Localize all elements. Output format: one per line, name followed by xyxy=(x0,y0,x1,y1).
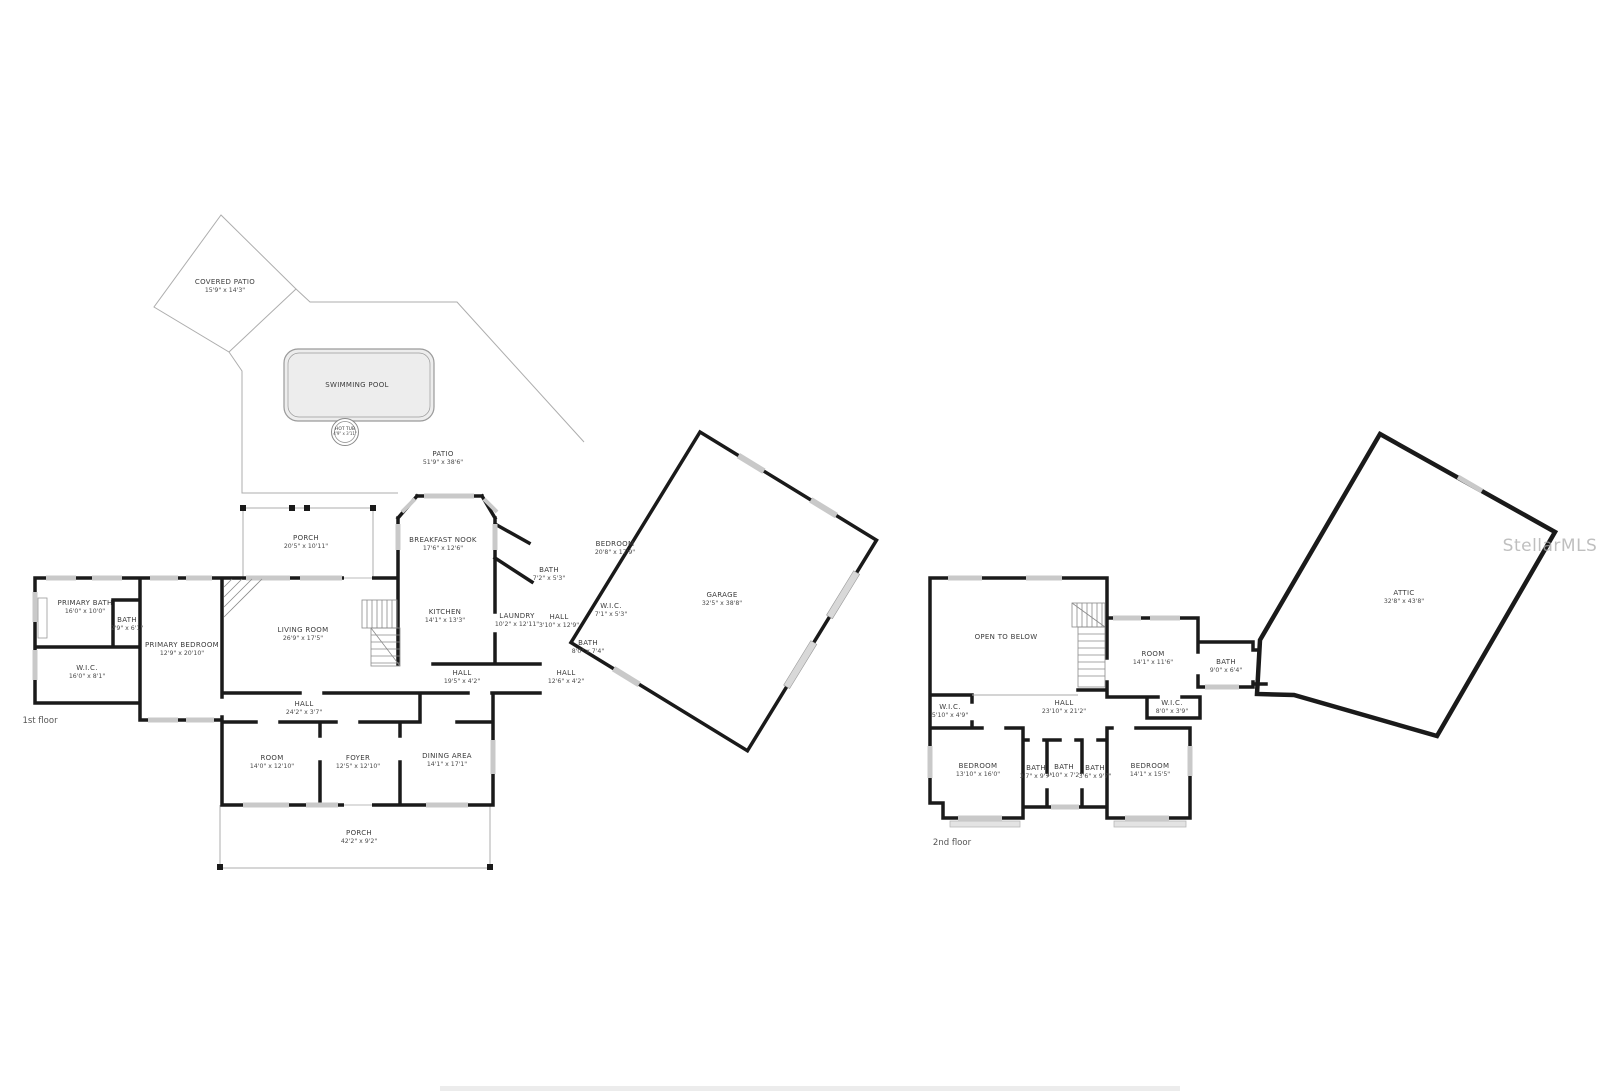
hot-tub-shape xyxy=(332,419,359,446)
first-floor-caption: 1st floor xyxy=(22,716,57,726)
swimming-pool-shape xyxy=(284,349,434,421)
floorplan-canvas: COVERED PATIO15'9" x 14'3"SWIMMING POOLH… xyxy=(0,0,1600,1091)
garage-outline xyxy=(571,432,877,751)
corner-closet-hatch xyxy=(224,579,262,617)
second-floor-walls xyxy=(930,578,1266,818)
porch-posts xyxy=(217,505,493,870)
vanity-fixture xyxy=(38,598,47,638)
first-floor-plan xyxy=(33,0,882,870)
attic-outline xyxy=(1257,434,1555,736)
second-floor-plan xyxy=(928,434,1556,827)
staircase-icon xyxy=(362,600,400,666)
patio-outline xyxy=(154,215,584,868)
attic-window xyxy=(1458,477,1482,491)
staircase2-icon xyxy=(1072,603,1105,687)
first-floor-walls xyxy=(35,496,540,805)
footer-band xyxy=(440,1086,1180,1091)
nook-corner-windows xyxy=(402,499,497,512)
floorplan-drawing xyxy=(0,0,1600,1091)
first-floor-windows xyxy=(33,494,498,808)
covered-patio-outline xyxy=(154,215,296,352)
roof-strips xyxy=(950,821,1186,827)
stellar-mls-watermark: StellarMLS xyxy=(1503,536,1598,556)
second-floor-caption: 2nd floor xyxy=(933,838,971,848)
garage-block xyxy=(569,429,881,755)
